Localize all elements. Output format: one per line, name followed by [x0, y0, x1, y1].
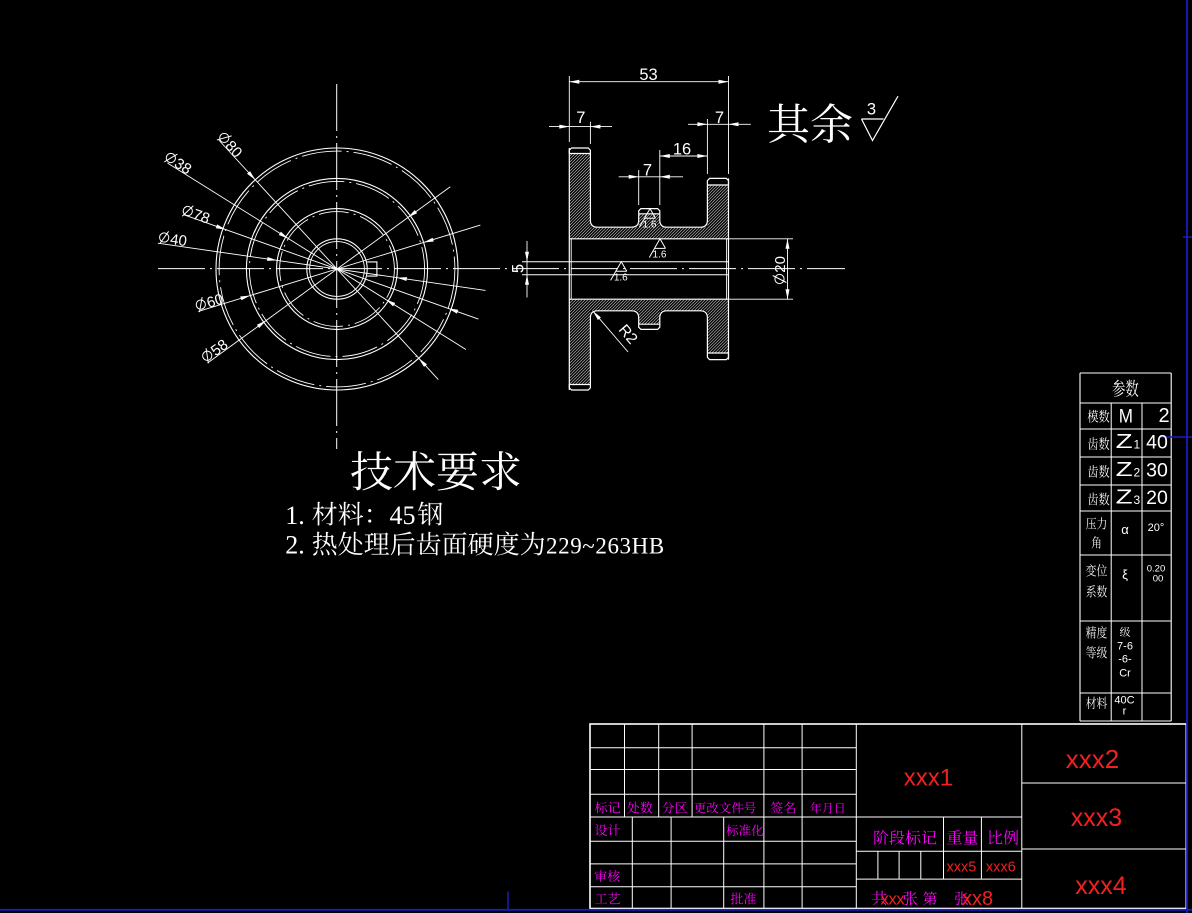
svg-text:45: 45 [390, 501, 416, 530]
svg-text:40: 40 [1146, 431, 1168, 453]
svg-text:ξ: ξ [1122, 567, 1128, 582]
svg-text:Cr: Cr [1119, 668, 1131, 680]
svg-text:α: α [1121, 522, 1129, 537]
svg-text:Z: Z [1116, 431, 1133, 453]
svg-text:r: r [1123, 706, 1127, 718]
svg-text:20°: 20° [1148, 522, 1165, 534]
svg-text:40: 40 [169, 231, 188, 250]
svg-text:53: 53 [639, 66, 657, 84]
svg-text:20: 20 [772, 256, 789, 273]
svg-text:xxx1: xxx1 [904, 765, 953, 792]
svg-text:Z: Z [1116, 459, 1133, 481]
svg-text:7-6: 7-6 [1117, 641, 1133, 653]
svg-text:1.6: 1.6 [614, 273, 628, 284]
svg-text:1: 1 [1134, 437, 1141, 451]
svg-text:xxx: xxx [881, 890, 906, 909]
svg-text:2: 2 [1134, 465, 1141, 479]
svg-text:7: 7 [643, 162, 652, 180]
svg-text:2: 2 [1158, 405, 1169, 427]
svg-text:3: 3 [867, 101, 876, 119]
svg-text:1.6: 1.6 [643, 219, 657, 230]
svg-text:00: 00 [1153, 574, 1164, 585]
svg-text:1.6: 1.6 [653, 250, 667, 261]
svg-text:20: 20 [1146, 487, 1168, 509]
svg-text:5: 5 [510, 264, 528, 273]
svg-text:30: 30 [1146, 459, 1168, 481]
svg-text:1.: 1. [285, 501, 305, 530]
svg-text:229~263HB: 229~263HB [546, 534, 665, 559]
svg-text:16: 16 [673, 141, 691, 159]
svg-text:3: 3 [1134, 493, 1141, 507]
svg-text:2.: 2. [285, 531, 305, 560]
svg-text:xxx6: xxx6 [986, 860, 1016, 876]
svg-text:M: M [1119, 405, 1133, 427]
svg-text:xxx4: xxx4 [1075, 872, 1127, 900]
svg-text:xxx2: xxx2 [1066, 744, 1119, 774]
svg-text:7: 7 [715, 109, 724, 127]
svg-text:7: 7 [576, 109, 585, 127]
svg-text:xx8: xx8 [962, 888, 993, 910]
svg-text:Z: Z [1116, 487, 1133, 509]
svg-text:xxx5: xxx5 [946, 860, 976, 876]
svg-text:xxx3: xxx3 [1071, 804, 1122, 832]
svg-text:-6-: -6- [1118, 654, 1132, 666]
